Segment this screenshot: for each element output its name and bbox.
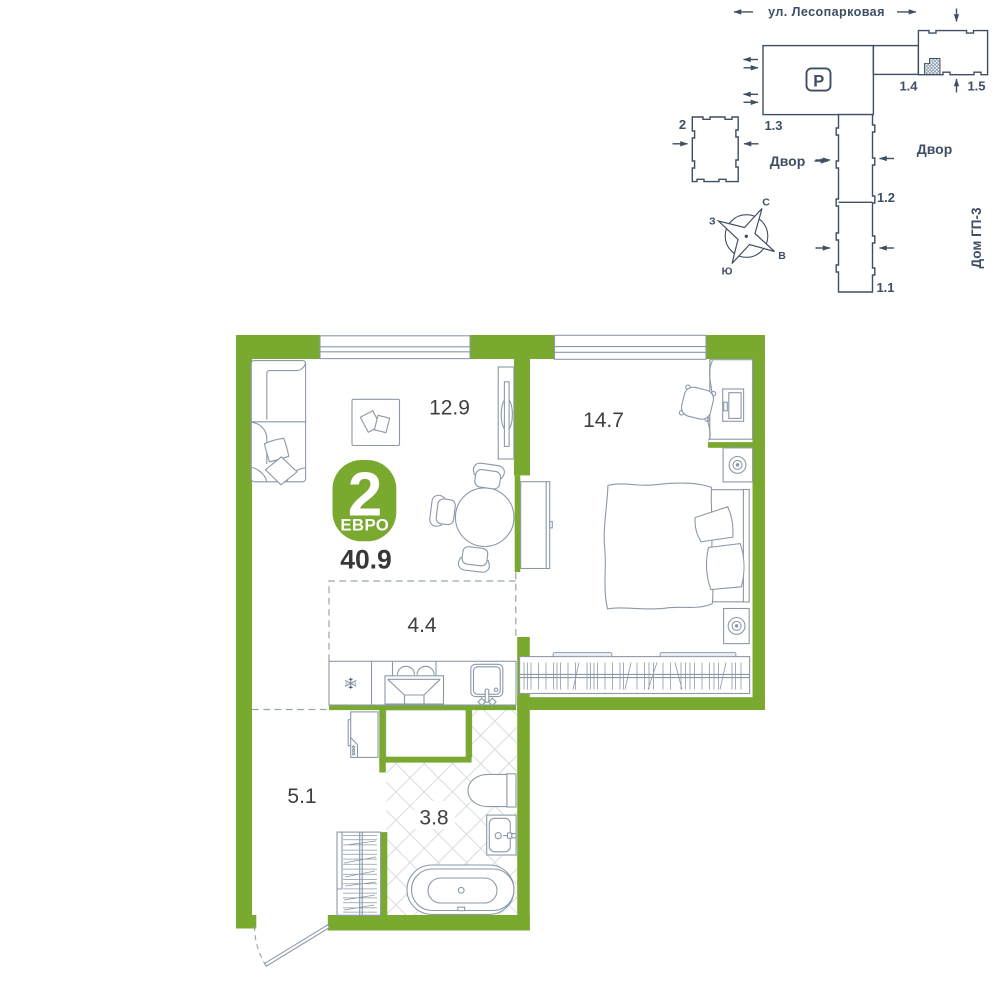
svg-text:4.4: 4.4 — [407, 614, 437, 637]
svg-text:З: З — [709, 216, 716, 228]
svg-text:P: P — [813, 72, 824, 90]
svg-text:Ю: Ю — [722, 266, 733, 278]
svg-text:1.1: 1.1 — [876, 280, 894, 295]
svg-text:5.1: 5.1 — [287, 785, 316, 808]
svg-text:Двор: Двор — [917, 141, 953, 157]
svg-text:14.7: 14.7 — [583, 409, 624, 432]
svg-text:С: С — [762, 197, 770, 209]
svg-text:1.2: 1.2 — [877, 190, 895, 205]
svg-text:12.9: 12.9 — [429, 396, 470, 419]
svg-text:Двор: Двор — [770, 153, 806, 169]
svg-text:ул. Лесопарковая: ул. Лесопарковая — [768, 5, 885, 19]
svg-text:2: 2 — [679, 117, 686, 132]
svg-text:1.3: 1.3 — [764, 118, 782, 133]
svg-text:1.5: 1.5 — [967, 78, 985, 93]
svg-text:40.9: 40.9 — [340, 544, 392, 574]
svg-text:Дом ГП-3: Дом ГП-3 — [969, 207, 984, 268]
svg-text:1.4: 1.4 — [899, 78, 918, 93]
svg-text:3.8: 3.8 — [419, 807, 448, 830]
svg-text:В: В — [778, 250, 786, 262]
svg-text:ЕВРО: ЕВРО — [340, 516, 389, 535]
